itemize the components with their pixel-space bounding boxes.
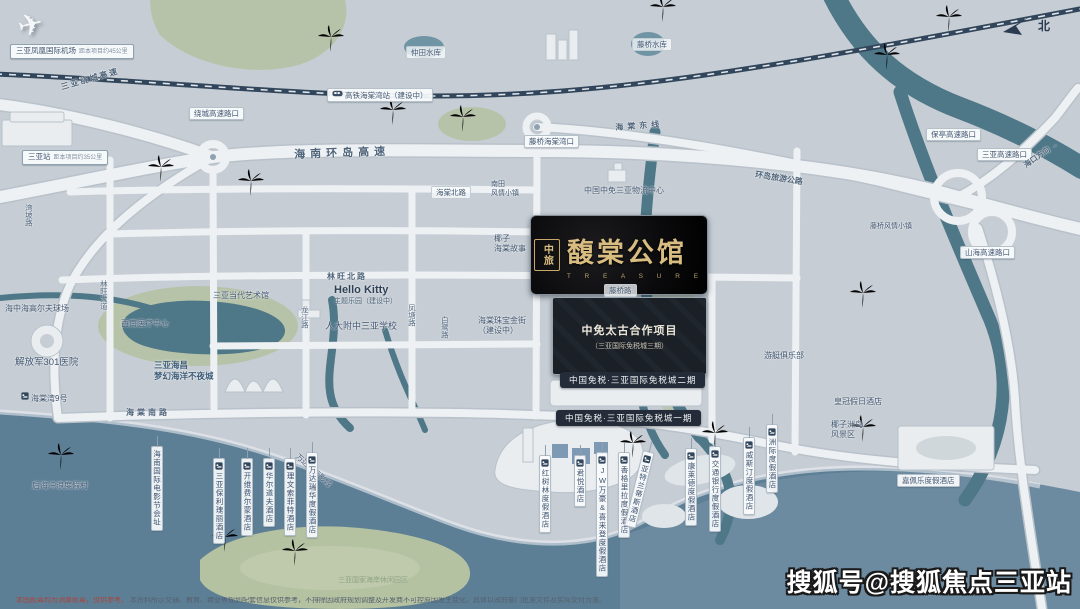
disclaimer: 本图距离均为测算距离，仅供参考。 本资料所示交通、教育、商业等规划配套信息仅供参… bbox=[16, 597, 716, 605]
national-coast-label: 三亚国家海岸休闲园区 bbox=[338, 577, 408, 586]
rdfz-school-label: 人大附中三亚学校 bbox=[325, 321, 397, 332]
wanpo-road-label: 湾坡路 bbox=[24, 204, 33, 227]
disclaimer-gray: 本资料所示交通、教育、商业等规划配套信息仅供参考，不排除因政府规划调整及开发商不… bbox=[130, 597, 606, 604]
location-map: { "watermark": "搜狐号@搜狐焦点三亚站", "compass_l… bbox=[0, 0, 1080, 609]
bailu-road-label: 白鹭路 bbox=[440, 316, 449, 339]
tengqiao-town-label: 藤桥风情小镇 bbox=[870, 223, 912, 232]
yacht-club-label: 游艇俱乐部 bbox=[764, 351, 804, 361]
nantian-town-label: 南田风情小镇 bbox=[491, 181, 519, 199]
longjiang-road-label: 龙江路 bbox=[300, 306, 309, 329]
hotel-grand-hyatt-label: 君悦酒店 bbox=[574, 455, 586, 507]
hotel-wanda-label: 万达瑞华度假酒店 bbox=[306, 452, 318, 538]
haitang-south-road-label: 海棠南路 bbox=[126, 408, 170, 418]
shanhai-exit-label: 山海高速路口 bbox=[960, 246, 1015, 259]
linwang-avenue-label: 林旺大道 bbox=[99, 280, 108, 310]
coconut-story-label: 椰子海棠故事 bbox=[494, 234, 526, 254]
hotel-intercontinental-label: 洲际度假酒店 bbox=[766, 424, 778, 493]
hotel-baoli-label: 三亚保利瑰丽酒店 bbox=[213, 458, 225, 544]
hotel-westin-label: 威斯汀度假酒店 bbox=[743, 437, 755, 515]
airport-label: 三亚凤凰国际机场距本项目约45公里 bbox=[10, 44, 134, 59]
film-festival-label: 海南国际电影节会址 bbox=[151, 446, 163, 531]
raocheng-exit-label: 绕城高速路口 bbox=[189, 107, 244, 120]
capella-hotel-label: 嘉佩乐度假酒店 bbox=[897, 474, 960, 487]
tengqiao-reservoir-label: 藤桥水库 bbox=[632, 38, 672, 51]
map-labels-layer: 三亚凤凰国际机场距本项目约45公里三亚站距本项目约35公里高铁海棠湾站（建设中）… bbox=[0, 0, 1080, 609]
rail-station-label: 高铁海棠湾站（建设中） bbox=[327, 88, 433, 102]
hospital-301-label: 解放军301医院 bbox=[15, 357, 78, 369]
jewelry-street-label: 海棠珠宝金街（建设中） bbox=[478, 316, 526, 336]
sanya-station-label: 三亚站距本项目约35公里 bbox=[22, 150, 108, 165]
sohu-watermark: 搜狐号@搜狐焦点三亚站 bbox=[787, 563, 1072, 599]
baoting-exit-label: 保亭高速路口 bbox=[926, 128, 981, 141]
linwang-north-road-label: 林旺北路 bbox=[327, 272, 367, 282]
island-ring-expressway-label: 海南环岛高速 bbox=[294, 146, 390, 163]
houhai-surf-label: 后海冲浪度假村 bbox=[32, 481, 88, 491]
hotel-mangrove-label: 红树林度假酒店 bbox=[539, 455, 551, 533]
medical-center-label: 西南医疗中心 bbox=[121, 319, 169, 329]
hotel-conrad-label: 康莱德度假酒店 bbox=[685, 448, 697, 526]
tengqiao-road-label: 藤桥路 bbox=[604, 284, 637, 297]
disclaimer-red: 本图距离均为测算距离，仅供参考。 bbox=[16, 597, 128, 604]
golf-club-label: 海中海高尔夫球场 bbox=[5, 304, 69, 314]
hotel-bank-resort-label: 交通银行度假酒店 bbox=[709, 446, 721, 532]
coconut-island-label: 椰子洲岛风景区 bbox=[831, 420, 863, 440]
fengtang-road-label: 凤塘路 bbox=[407, 304, 416, 327]
contemporary-art-museum-label: 三亚当代艺术馆 bbox=[213, 291, 269, 301]
haitang-north-road-label: 海棠北路 bbox=[431, 186, 471, 199]
hotel-fairmont-label: 开维费尔蒙酒店 bbox=[241, 458, 253, 536]
haichang-ocean-town-label: 三亚海昌梦幻海洋不夜城 bbox=[154, 360, 214, 381]
haitang-east-line-label: 海棠东线 bbox=[615, 120, 664, 133]
haitangwan-no9-label: 海棠湾9号 bbox=[21, 392, 67, 404]
zhongtian-reservoir-label: 仲田水库 bbox=[406, 46, 446, 59]
cdf-logistics-label: 中国中免三亚物流中心 bbox=[584, 186, 664, 196]
hotel-sofitel-label: 理文索菲特酒店 bbox=[284, 458, 296, 536]
tengqiao-exit-label: 藤桥海棠湾口 bbox=[524, 135, 579, 148]
hotel-jw-marriott-label: JW万豪&喜来登度假酒店 bbox=[596, 452, 608, 577]
island-tour-road-label: 环岛旅游公路 bbox=[754, 170, 803, 187]
hotel-waldorf-label: 华尔道夫酒店 bbox=[263, 458, 275, 527]
crowne-plaza-label: 皇冠假日酒店 bbox=[834, 397, 882, 407]
raocheng-expressway-label: 三亚绕城高速 bbox=[60, 66, 120, 92]
